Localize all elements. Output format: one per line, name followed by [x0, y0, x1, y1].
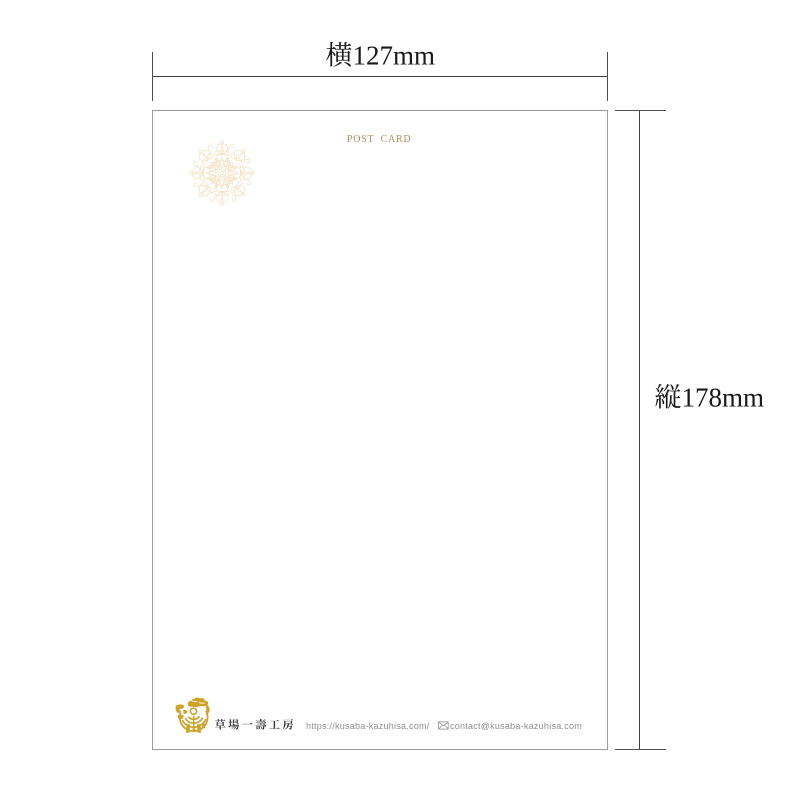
svg-text:127mm: 127mm: [353, 40, 436, 70]
svg-text:178mm: 178mm: [682, 383, 765, 412]
